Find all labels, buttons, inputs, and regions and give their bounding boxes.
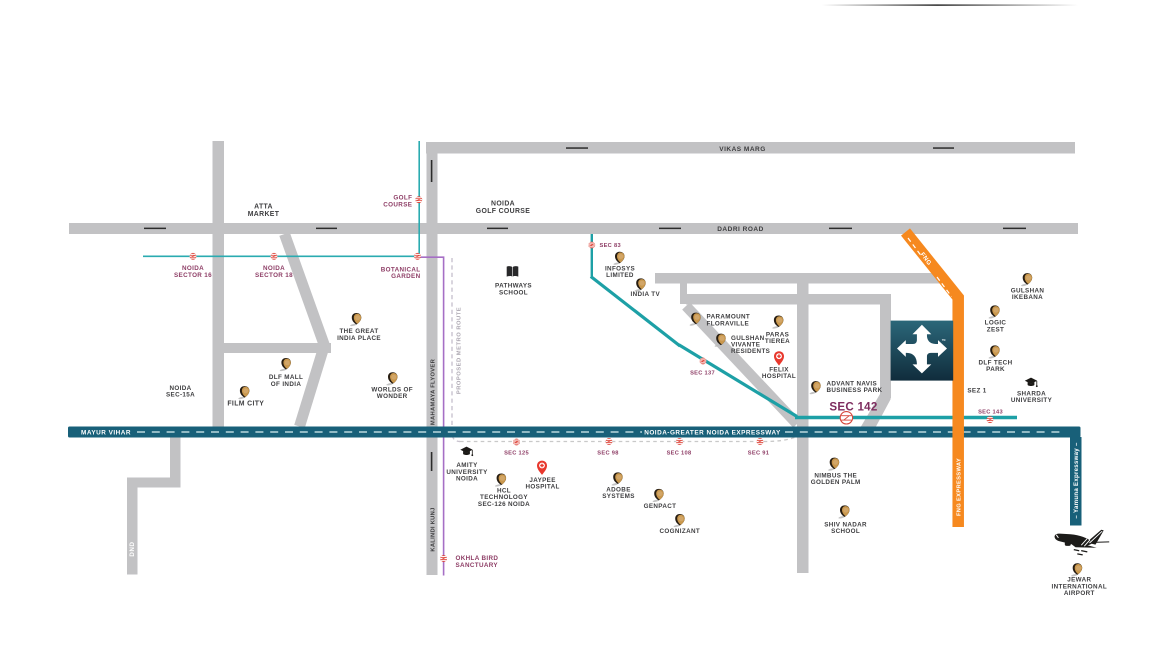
svg-text:GENPACT: GENPACT [644,503,677,510]
svg-text:RESIDENTS: RESIDENTS [731,348,770,355]
svg-text:GARDEN: GARDEN [391,273,420,280]
svg-text:OF INDIA: OF INDIA [271,381,302,388]
svg-text:KALINDI KUNJ: KALINDI KUNJ [431,507,437,551]
svg-text:PARK: PARK [986,366,1005,373]
svg-text:FNG EXPRESSWAY: FNG EXPRESSWAY [957,458,963,516]
svg-text:SCHOOL: SCHOOL [831,528,860,535]
svg-text:– Yamuna Expressway –: – Yamuna Expressway – [1074,442,1080,519]
svg-text:LIMITED: LIMITED [606,272,634,279]
svg-text:UNIVERSITY: UNIVERSITY [1011,397,1053,404]
svg-text:SYSTEMS: SYSTEMS [602,493,635,500]
svg-text:FLORAVILLE: FLORAVILLE [707,321,750,328]
svg-text:NOIDA-GREATER NOIDA EXPRESSWAY: NOIDA-GREATER NOIDA EXPRESSWAY [644,429,781,436]
svg-text:SEC 125: SEC 125 [504,451,529,457]
svg-text:TM: TM [942,339,945,342]
svg-text:SCHOOL: SCHOOL [499,289,528,296]
svg-text:SECTOR 18: SECTOR 18 [255,272,293,279]
svg-text:SEC 108: SEC 108 [667,451,692,457]
svg-text:SEZ 1: SEZ 1 [967,387,986,394]
svg-text:SEC 91: SEC 91 [748,451,769,457]
svg-text:HOSPITAL: HOSPITAL [762,373,796,380]
svg-text:INDIA PLACE: INDIA PLACE [337,335,381,342]
svg-text:NOIDA: NOIDA [491,201,515,208]
svg-text:MARKET: MARKET [248,211,280,218]
svg-text:SEC 137: SEC 137 [690,371,715,377]
svg-text:DADRI ROAD: DADRI ROAD [717,226,764,233]
svg-text:AIRPORT: AIRPORT [1064,590,1095,597]
svg-text:PROPOSED METRO ROUTE: PROPOSED METRO ROUTE [456,307,462,394]
svg-text:BUSINESS PARK: BUSINESS PARK [827,387,883,394]
svg-text:SEC-126 NOIDA: SEC-126 NOIDA [478,501,530,508]
svg-text:SECTOR 16: SECTOR 16 [174,272,212,279]
svg-text:SANCTUARY: SANCTUARY [456,562,499,569]
svg-text:MAHAMAYA FLYOVER: MAHAMAYA FLYOVER [431,358,437,425]
svg-text:MAYUR VIHAR: MAYUR VIHAR [81,429,131,436]
svg-text:HOSPITAL: HOSPITAL [526,484,560,491]
svg-text:FILM CITY: FILM CITY [227,401,264,408]
svg-text:TIEREA: TIEREA [765,338,790,345]
svg-text:SEC 83: SEC 83 [600,243,621,249]
svg-text:SEC 142: SEC 142 [829,400,877,413]
svg-text:NOIDA: NOIDA [456,476,478,483]
svg-text:ZEST: ZEST [987,326,1005,333]
svg-text:SEC 98: SEC 98 [597,451,618,457]
svg-text:IKEBANA: IKEBANA [1012,294,1043,301]
svg-text:GOLDEN PALM: GOLDEN PALM [811,479,861,486]
svg-text:INDIA TV: INDIA TV [631,291,661,298]
svg-text:COURSE: COURSE [383,202,412,209]
svg-text:GOLF COURSE: GOLF COURSE [476,208,530,215]
svg-text:DND: DND [129,541,136,556]
svg-text:ATTA: ATTA [254,204,273,211]
svg-text:SEC 143: SEC 143 [978,409,1003,415]
svg-text:VIKAS MARG: VIKAS MARG [719,146,766,153]
svg-text:WONDER: WONDER [377,393,408,400]
svg-text:COGNIZANT: COGNIZANT [660,528,701,535]
svg-text:SEC-15A: SEC-15A [166,392,195,399]
